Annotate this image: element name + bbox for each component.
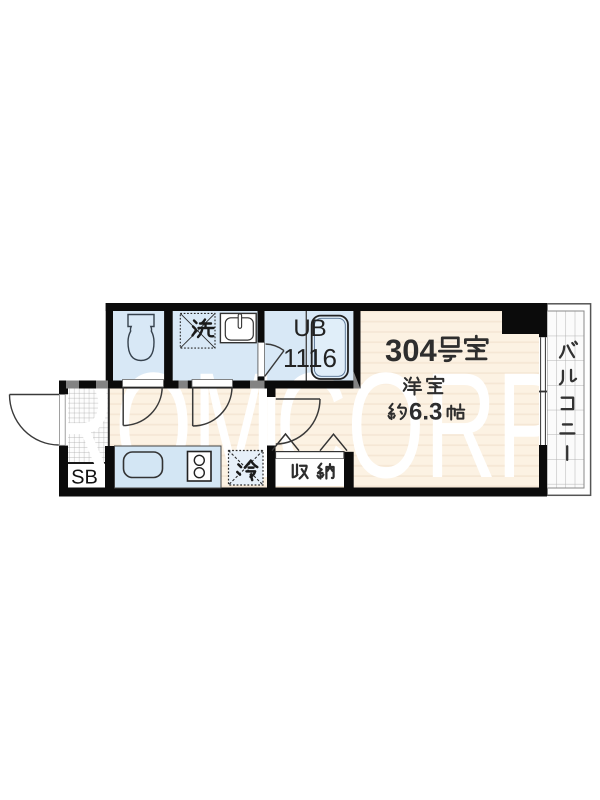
svg-text:UB: UB (293, 315, 326, 342)
svg-text:SB: SB (71, 467, 98, 489)
svg-text:1116: 1116 (283, 343, 337, 373)
svg-text:304: 304 (385, 333, 437, 368)
svg-text:6.3: 6.3 (409, 399, 442, 426)
